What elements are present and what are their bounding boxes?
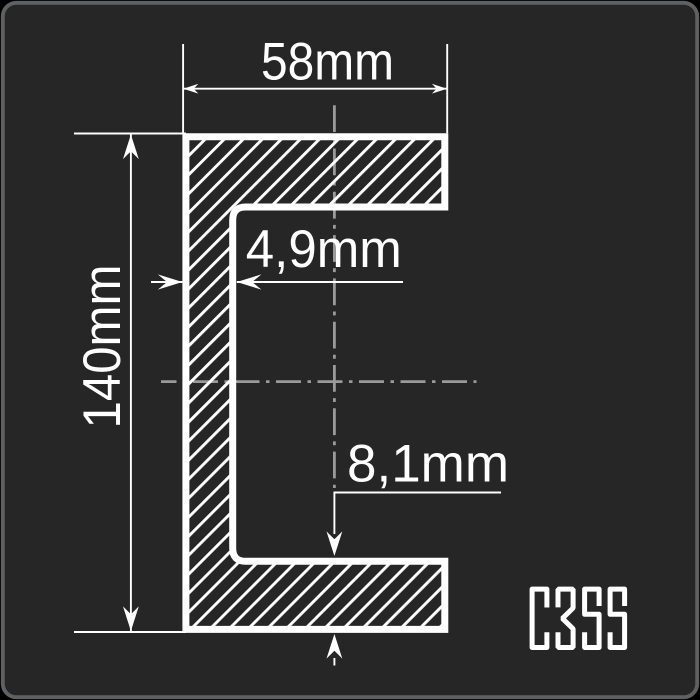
svg-text:58mm: 58mm <box>261 33 394 92</box>
svg-text:140mm: 140mm <box>73 265 132 429</box>
svg-text:8,1mm: 8,1mm <box>347 435 509 494</box>
svg-text:4,9mm: 4,9mm <box>246 220 402 279</box>
